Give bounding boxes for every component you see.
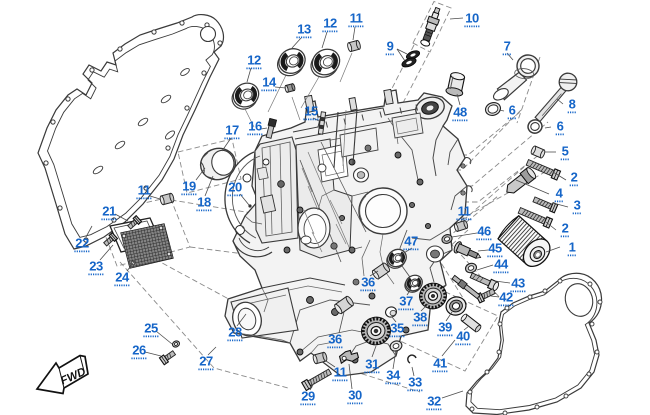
svg-text:29: 29 bbox=[301, 389, 315, 404]
svg-text:43: 43 bbox=[511, 276, 525, 291]
svg-text:16: 16 bbox=[248, 119, 262, 134]
svg-text:40: 40 bbox=[456, 329, 470, 344]
svg-text:5: 5 bbox=[562, 144, 569, 159]
svg-text:21: 21 bbox=[102, 204, 116, 219]
svg-text:2: 2 bbox=[562, 221, 569, 236]
svg-text:47: 47 bbox=[404, 234, 418, 249]
svg-text:14: 14 bbox=[262, 75, 277, 90]
svg-text:48: 48 bbox=[453, 105, 467, 120]
svg-text:35: 35 bbox=[390, 321, 404, 336]
svg-text:36: 36 bbox=[328, 332, 342, 347]
svg-text:32: 32 bbox=[427, 394, 441, 409]
svg-text:11: 11 bbox=[350, 11, 363, 26]
svg-text:11: 11 bbox=[458, 204, 471, 219]
svg-text:38: 38 bbox=[413, 310, 427, 325]
svg-text:11: 11 bbox=[138, 183, 151, 198]
svg-text:3: 3 bbox=[574, 198, 581, 213]
svg-text:25: 25 bbox=[144, 321, 158, 336]
svg-text:2: 2 bbox=[571, 170, 578, 185]
svg-text:39: 39 bbox=[438, 320, 452, 335]
svg-text:30: 30 bbox=[348, 388, 362, 403]
svg-text:20: 20 bbox=[228, 180, 242, 195]
svg-text:45: 45 bbox=[488, 241, 502, 256]
svg-text:33: 33 bbox=[408, 375, 422, 390]
svg-text:44: 44 bbox=[494, 257, 509, 272]
svg-text:41: 41 bbox=[433, 356, 447, 371]
svg-text:34: 34 bbox=[386, 368, 401, 383]
svg-text:19: 19 bbox=[182, 179, 196, 194]
svg-text:6: 6 bbox=[557, 119, 564, 134]
svg-text:37: 37 bbox=[399, 294, 413, 309]
svg-text:24: 24 bbox=[115, 270, 130, 285]
svg-text:27: 27 bbox=[199, 354, 213, 369]
svg-text:11: 11 bbox=[334, 365, 347, 380]
svg-text:9: 9 bbox=[387, 39, 394, 54]
svg-text:22: 22 bbox=[75, 236, 89, 251]
svg-text:23: 23 bbox=[89, 259, 103, 274]
svg-text:7: 7 bbox=[504, 39, 511, 54]
svg-text:6: 6 bbox=[509, 103, 516, 118]
svg-text:8: 8 bbox=[569, 97, 576, 112]
svg-text:26: 26 bbox=[132, 343, 146, 358]
svg-text:17: 17 bbox=[225, 123, 239, 138]
svg-text:28: 28 bbox=[228, 325, 242, 340]
svg-text:31: 31 bbox=[365, 357, 379, 372]
svg-text:1: 1 bbox=[569, 240, 576, 255]
svg-text:12: 12 bbox=[247, 53, 261, 68]
svg-text:13: 13 bbox=[297, 22, 311, 37]
svg-text:36: 36 bbox=[361, 275, 375, 290]
svg-text:10: 10 bbox=[465, 11, 479, 26]
svg-text:46: 46 bbox=[477, 224, 491, 239]
svg-text:12: 12 bbox=[323, 16, 337, 31]
svg-text:18: 18 bbox=[197, 195, 211, 210]
svg-text:15: 15 bbox=[304, 104, 318, 119]
